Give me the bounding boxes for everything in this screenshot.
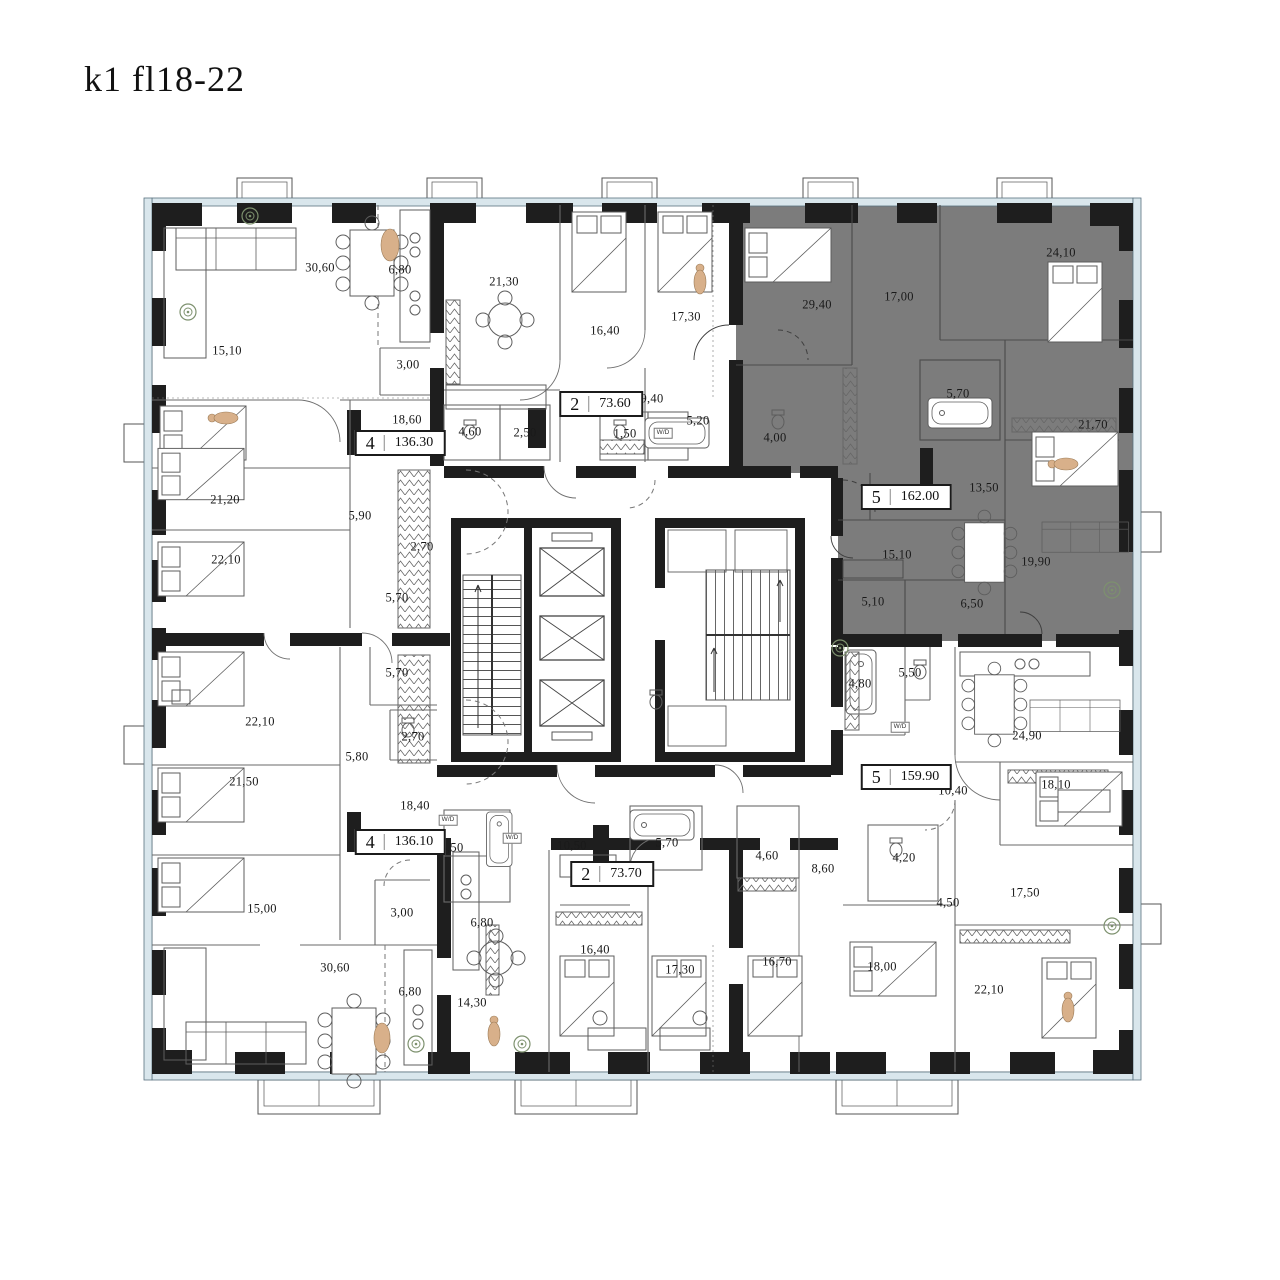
unit-badge-5-159.90: 5159.90 bbox=[861, 764, 952, 790]
room-area-label: 8,60 bbox=[811, 862, 834, 877]
room-area-label: 5,90 bbox=[348, 509, 371, 524]
unit-area-value: 162.00 bbox=[891, 486, 950, 508]
room-area-label: 24,90 bbox=[1012, 729, 1042, 744]
unit-rooms-count: 2 bbox=[572, 863, 599, 885]
room-area-label: 5,80 bbox=[345, 750, 368, 765]
room-area-label: 21,20 bbox=[210, 493, 240, 508]
room-area-label: 4,60 bbox=[458, 425, 481, 440]
room-area-label: 3,00 bbox=[390, 906, 413, 921]
room-area-label: 2,70 bbox=[401, 730, 424, 745]
floorplan-drawing bbox=[0, 0, 1280, 1280]
unit-rooms-count: 2 bbox=[561, 393, 588, 415]
room-area-label: 5,70 bbox=[385, 666, 408, 681]
unit-rooms-count: 5 bbox=[863, 486, 890, 508]
room-area-label: 9,40 bbox=[640, 392, 663, 407]
room-area-label: 5,10 bbox=[861, 595, 884, 610]
room-area-label: 6,50 bbox=[960, 597, 983, 612]
unit-area-value: 73.70 bbox=[600, 863, 652, 885]
elevator-shaft bbox=[540, 548, 604, 726]
room-area-label: 30,60 bbox=[305, 261, 335, 276]
room-area-label: 5,70 bbox=[946, 387, 969, 402]
room-area-label: 16,40 bbox=[590, 324, 620, 339]
room-area-label: 5,20 bbox=[686, 414, 709, 429]
unit-badge-4-136.10: 4136.10 bbox=[355, 829, 446, 855]
floorplan-page: k1 fl18-22 bbox=[0, 0, 1280, 1280]
unit-badge-5-162.00: 5162.00 bbox=[861, 484, 952, 510]
room-area-label: 21,70 bbox=[1078, 418, 1108, 433]
room-area-label: 6,80 bbox=[470, 916, 493, 931]
room-area-label: 18,40 bbox=[400, 799, 430, 814]
room-area-label: 2,50 bbox=[513, 426, 536, 441]
room-area-label: 17,30 bbox=[665, 963, 695, 978]
room-area-label: 22,10 bbox=[974, 983, 1004, 998]
room-area-label: 18,00 bbox=[867, 960, 897, 975]
room-area-label: 5,70 bbox=[385, 591, 408, 606]
unit-area-value: 73.60 bbox=[589, 393, 641, 415]
unit-badge-2-73.60: 273.60 bbox=[559, 391, 643, 417]
room-area-label: 3,00 bbox=[396, 358, 419, 373]
room-area-label: 14,30 bbox=[457, 996, 487, 1011]
room-area-label: 4,60 bbox=[755, 849, 778, 864]
washer-dryer-label: W/D bbox=[439, 815, 458, 826]
room-area-label: 19,90 bbox=[1021, 555, 1051, 570]
room-area-label: 15,10 bbox=[212, 344, 242, 359]
room-area-label: 22,10 bbox=[211, 553, 241, 568]
room-area-label: 15,00 bbox=[247, 902, 277, 917]
room-area-label: 18,10 bbox=[1041, 778, 1071, 793]
room-area-label: 4,50 bbox=[936, 896, 959, 911]
unit-rooms-count: 5 bbox=[863, 766, 890, 788]
room-area-label: 21,50 bbox=[229, 775, 259, 790]
room-area-label: 21,30 bbox=[489, 275, 519, 290]
room-area-label: 17,50 bbox=[1010, 886, 1040, 901]
room-area-label: 4,20 bbox=[892, 851, 915, 866]
unit-area-value: 136.10 bbox=[385, 831, 444, 853]
room-area-label: 15,10 bbox=[882, 548, 912, 563]
lounge-chair-icon bbox=[381, 229, 399, 261]
unit-area-value: 159.90 bbox=[891, 766, 950, 788]
room-area-label: 5,50 bbox=[898, 666, 921, 681]
washer-dryer-label: W/D bbox=[891, 722, 910, 733]
room-area-label: 30,60 bbox=[320, 961, 350, 976]
unit-rooms-count: 4 bbox=[357, 432, 384, 454]
room-area-label: 4,00 bbox=[763, 431, 786, 446]
room-area-label: 17,00 bbox=[884, 290, 914, 305]
room-area-label: 16,40 bbox=[580, 943, 610, 958]
room-area-label: 6,80 bbox=[398, 985, 421, 1000]
lounge-chair-icon bbox=[374, 1023, 390, 1053]
room-area-label: 24,10 bbox=[1046, 246, 1076, 261]
unit-area-value: 136.30 bbox=[385, 432, 444, 454]
unit-rooms-count: 4 bbox=[357, 831, 384, 853]
unit-badge-4-136.30: 4136.30 bbox=[355, 430, 446, 456]
room-area-label: 4,80 bbox=[848, 677, 871, 692]
room-area-label: 17,30 bbox=[671, 310, 701, 325]
room-area-label: 6,80 bbox=[388, 263, 411, 278]
room-area-label: 22,10 bbox=[245, 715, 275, 730]
room-area-label: 1,50 bbox=[613, 427, 636, 442]
washer-dryer-label: W/D bbox=[503, 833, 522, 844]
unit-badge-2-73.70: 273.70 bbox=[570, 861, 654, 887]
room-area-label: 16,70 bbox=[762, 955, 792, 970]
room-area-label: 18,60 bbox=[392, 413, 422, 428]
room-area-label: 5,70 bbox=[655, 836, 678, 851]
room-area-label: 10,50 bbox=[557, 839, 587, 854]
washer-dryer-label: W/D bbox=[654, 428, 673, 439]
room-area-label: 29,40 bbox=[802, 298, 832, 313]
room-area-label: 13,50 bbox=[969, 481, 999, 496]
room-area-label: 2,70 bbox=[410, 540, 433, 555]
